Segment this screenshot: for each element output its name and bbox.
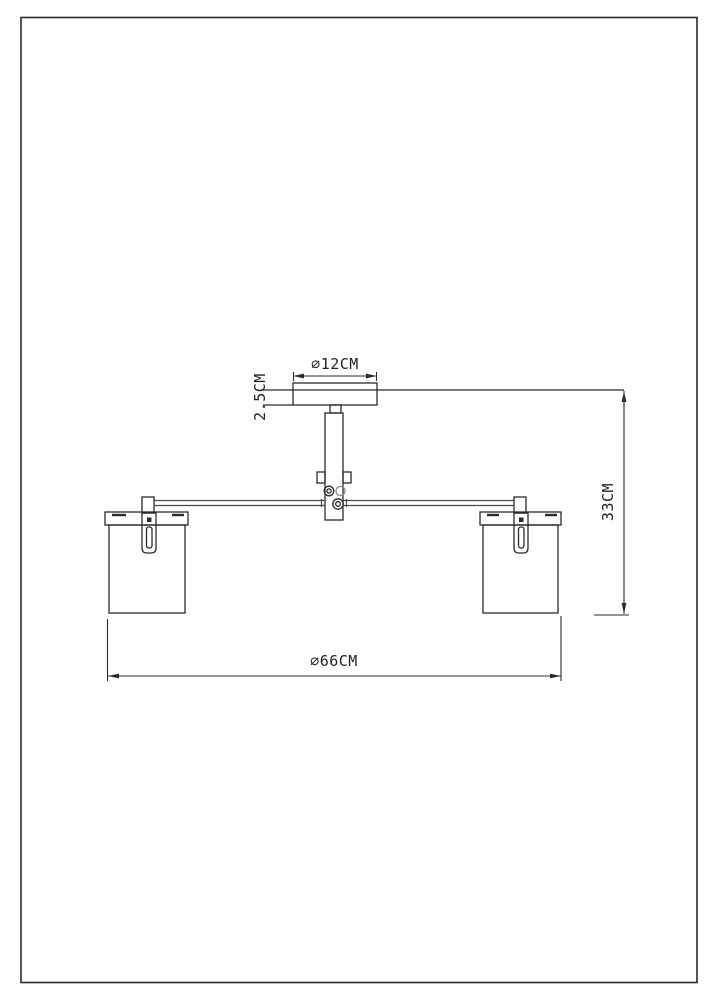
canopy-height-dimension-label: 2.5CM (251, 373, 269, 421)
height-dimension-label: 33CM (599, 483, 617, 521)
dimension-overall-diameter (108, 616, 562, 681)
canopy (263, 383, 377, 405)
right-shade (480, 497, 561, 613)
lamp-fixture (105, 383, 624, 613)
canopy-diameter-dimension-label: ⌀12CM (311, 355, 359, 373)
overall-diameter-dimension-label: ⌀66CM (310, 652, 358, 670)
lamp-dimension-drawing: ⌀12CM 2.5CM 33CM ⌀66CM (0, 0, 708, 1000)
left-shade (105, 497, 188, 613)
dimension-canopy-diameter (293, 372, 377, 381)
swivel-joint (324, 486, 345, 509)
dimensions (108, 372, 630, 681)
drawing-page: ⌀12CM 2.5CM 33CM ⌀66CM (0, 0, 708, 1000)
